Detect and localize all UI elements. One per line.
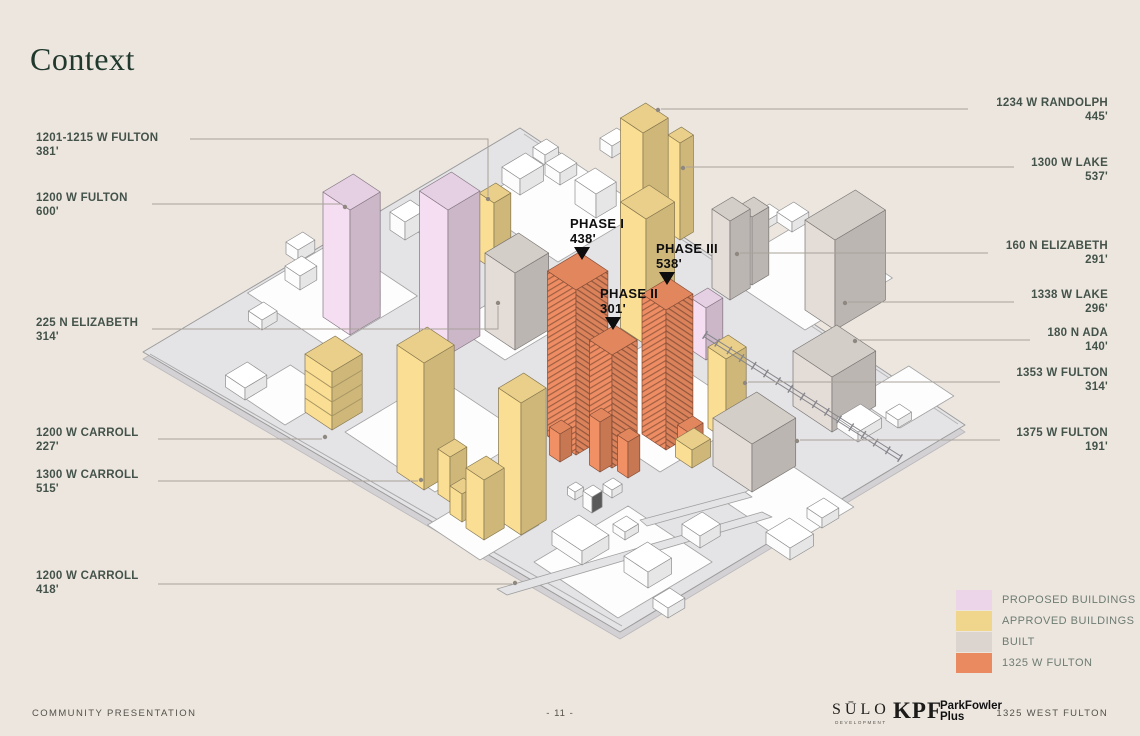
- building-height: 291': [1006, 253, 1108, 267]
- phase-name: PHASE I: [570, 216, 624, 231]
- building-name: 1300 W LAKE: [1031, 156, 1108, 170]
- building-name: 1338 W LAKE: [1031, 288, 1108, 302]
- building-height: 537': [1031, 170, 1108, 184]
- building-label: 225 N ELIZABETH 314': [36, 316, 138, 344]
- legend-row: PROPOSED BUILDINGS: [956, 589, 1136, 610]
- presentation-type: COMMUNITY PRESENTATION: [32, 708, 196, 719]
- phase-height: 301': [600, 301, 658, 316]
- legend-swatch-built: [956, 632, 992, 652]
- legend-row: BUILT: [956, 631, 1136, 652]
- building-height: 191': [1016, 440, 1108, 454]
- building-height: 381': [36, 145, 158, 159]
- building-label: 160 N ELIZABETH 291': [1006, 239, 1108, 267]
- legend-swatch-proposed: [956, 590, 992, 610]
- building-height: 314': [1016, 380, 1108, 394]
- building-name: 1201-1215 W FULTON: [36, 131, 158, 145]
- building-height: 418': [36, 583, 139, 597]
- phase-name: PHASE III: [656, 241, 718, 256]
- legend: PROPOSED BUILDINGS APPROVED BUILDINGS BU…: [956, 589, 1136, 673]
- building-name: 1234 W RANDOLPH: [996, 96, 1108, 110]
- legend-swatch-approved: [956, 611, 992, 631]
- phase-label: PHASE II 301': [600, 286, 658, 316]
- building-name: 1375 W FULTON: [1016, 426, 1108, 440]
- page-number: - 11 -: [530, 708, 590, 719]
- legend-label: PROPOSED BUILDINGS: [1002, 594, 1136, 606]
- phase-height: 438': [570, 231, 624, 246]
- legend-row: 1325 W FULTON: [956, 652, 1136, 673]
- building-height: 314': [36, 330, 138, 344]
- building-name: 160 N ELIZABETH: [1006, 239, 1108, 253]
- building-label: 1300 W CARROLL 515': [36, 468, 139, 496]
- legend-swatch-subject: [956, 653, 992, 673]
- building-name: 1200 W CARROLL: [36, 426, 139, 440]
- legend-label: BUILT: [1002, 636, 1035, 648]
- phase-label: PHASE I 438': [570, 216, 624, 246]
- phase-label: PHASE III 538': [656, 241, 718, 271]
- building-label: 1234 W RANDOLPH 445': [996, 96, 1108, 124]
- building-height: 445': [996, 110, 1108, 124]
- building-height: 515': [36, 482, 139, 496]
- building-label: 180 N ADA 140': [1047, 326, 1108, 354]
- building-height: 227': [36, 440, 139, 454]
- parkfowler-logo: ParkFowler Plus: [940, 701, 1002, 723]
- building-label: 1353 W FULTON 314': [1016, 366, 1108, 394]
- building-label: 1200 W CARROLL 418': [36, 569, 139, 597]
- legend-label: 1325 W FULTON: [1002, 657, 1092, 669]
- slide: Context 1201-1215 W FULTON 381' 1200 W F…: [0, 0, 1140, 736]
- building-name: 1300 W CARROLL: [36, 468, 139, 482]
- legend-label: APPROVED BUILDINGS: [1002, 615, 1134, 627]
- sulo-logo: SŪLO DEVELOPMENT: [832, 701, 890, 725]
- building-label: 1338 W LAKE 296': [1031, 288, 1108, 316]
- building-label: 1300 W LAKE 537': [1031, 156, 1108, 184]
- project-name: 1325 WEST FULTON: [996, 708, 1108, 719]
- legend-row: APPROVED BUILDINGS: [956, 610, 1136, 631]
- building-label: 1200 W FULTON 600': [36, 191, 128, 219]
- footer: COMMUNITY PRESENTATION - 11 - SŪLO DEVEL…: [0, 698, 1140, 736]
- building-height: 140': [1047, 340, 1108, 354]
- kpf-logo: KPF: [893, 698, 942, 724]
- phase-name: PHASE II: [600, 286, 658, 301]
- page-title: Context: [30, 41, 135, 78]
- building-name: 1200 W FULTON: [36, 191, 128, 205]
- building-name: 180 N ADA: [1047, 326, 1108, 340]
- phase-height: 538': [656, 256, 718, 271]
- building-height: 296': [1031, 302, 1108, 316]
- building-label: 1200 W CARROLL 227': [36, 426, 139, 454]
- building-name: 1200 W CARROLL: [36, 569, 139, 583]
- building-label: 1375 W FULTON 191': [1016, 426, 1108, 454]
- building-name: 1353 W FULTON: [1016, 366, 1108, 380]
- building-height: 600': [36, 205, 128, 219]
- building-name: 225 N ELIZABETH: [36, 316, 138, 330]
- building-label: 1201-1215 W FULTON 381': [36, 131, 158, 159]
